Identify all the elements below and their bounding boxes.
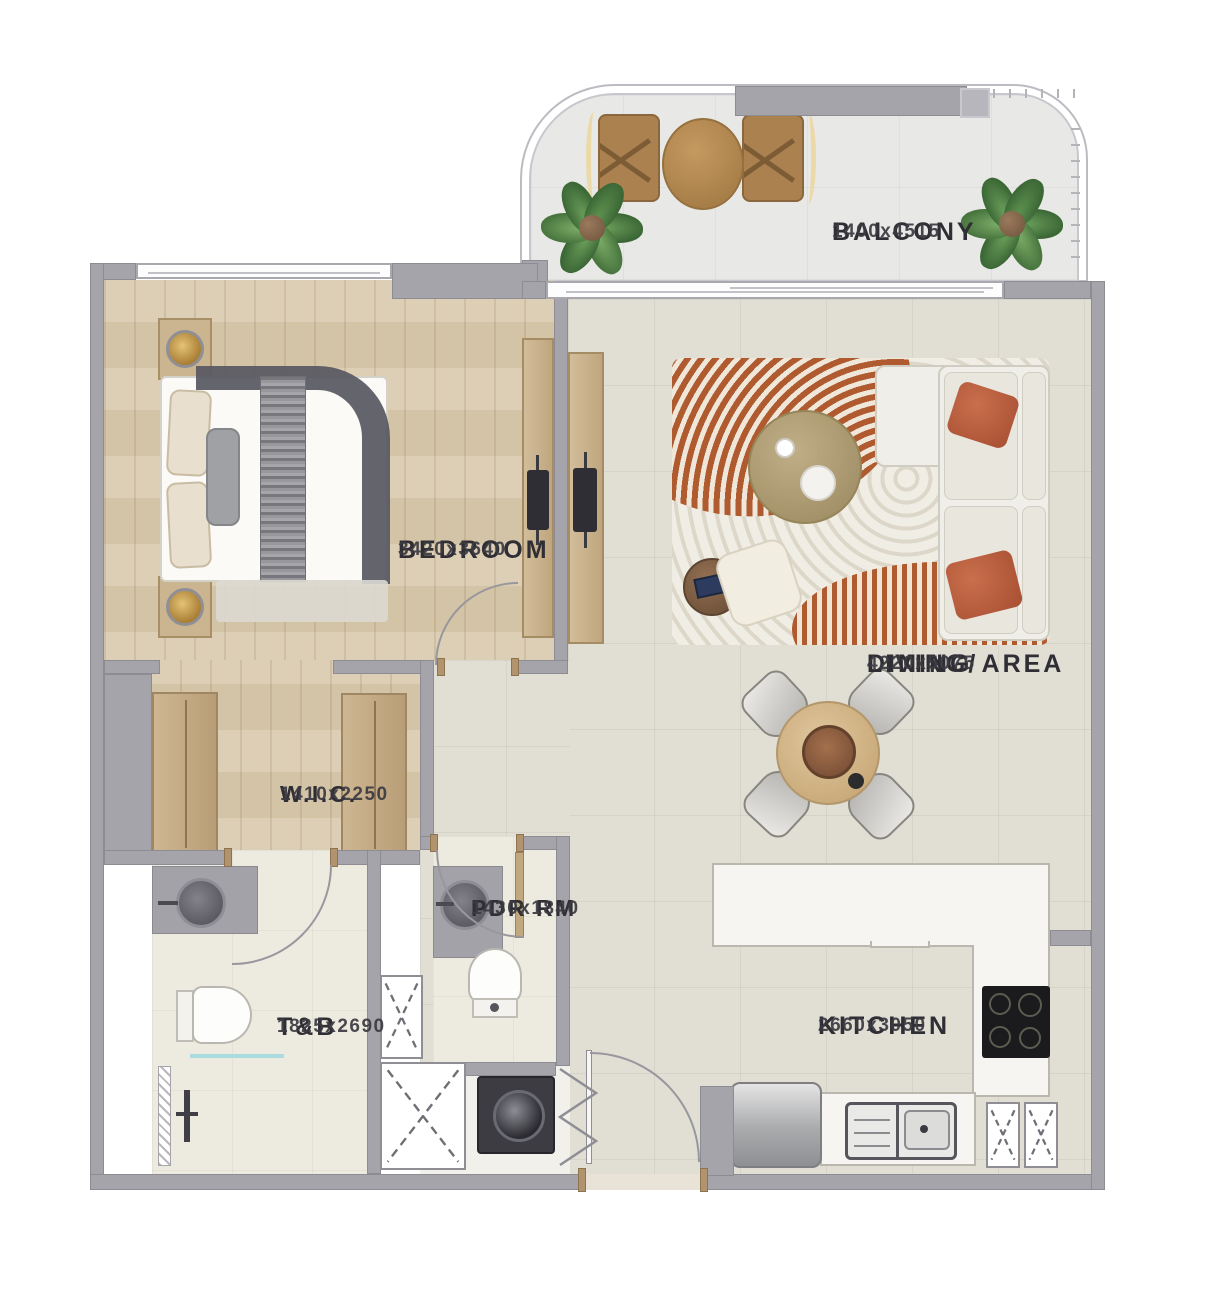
bed-throw-blanket (260, 376, 306, 582)
sofa-back-cushion (1022, 506, 1046, 634)
plant-icon (542, 178, 642, 278)
bed-foot-blanket (216, 580, 388, 622)
tv-icon (527, 470, 549, 530)
cup-icon (775, 438, 795, 458)
tall-cabinet (986, 1102, 1020, 1168)
lamp-icon (166, 588, 204, 626)
lamp-icon (166, 330, 204, 368)
sink-icon (176, 878, 226, 928)
wall-bottom-right (703, 1174, 1105, 1190)
wall-wic-east (420, 660, 434, 850)
shower-drain-strip (158, 1066, 171, 1166)
wardrobe-icon (341, 693, 407, 857)
balcony-chair-right-arm (800, 112, 816, 204)
door-frame (578, 1168, 586, 1192)
wall-kitchen-stub (1050, 930, 1091, 946)
laundry-bifold-door (556, 1066, 602, 1168)
room-dimensions: 1825x2690 (277, 1016, 386, 1038)
flush-button (490, 1003, 499, 1012)
shower-handle-bar (176, 1112, 198, 1116)
dishwasher-handle (870, 941, 930, 948)
faucet-icon (158, 901, 178, 905)
storage-closet (380, 1062, 466, 1170)
dining-table-icon (776, 701, 880, 805)
kitchen-sink-icon (845, 1102, 957, 1160)
washing-machine-icon (477, 1076, 555, 1154)
plate-icon (800, 465, 836, 501)
plant-icon (962, 174, 1062, 274)
wall-left (90, 263, 104, 1190)
coffee-table-icon (748, 410, 862, 524)
balcony-sliding-door (546, 281, 1004, 299)
wall-entry-east (700, 1086, 734, 1176)
floor-plan: BALCONY 1400x4515 BEDROOM 3420x3640 LIVI… (0, 0, 1230, 1294)
storage-closet (380, 975, 423, 1059)
bed-icon (158, 318, 390, 640)
wall-segment (522, 281, 546, 299)
room-dimensions: 3420x3640 (398, 539, 507, 561)
faucet-icon (436, 902, 454, 906)
wall-segment (1004, 281, 1091, 299)
wall-right (1091, 281, 1105, 1190)
balcony-chair-right-icon (742, 114, 804, 202)
wall-wic-west (104, 674, 152, 860)
bedroom-window (136, 263, 392, 279)
wall-segment (333, 660, 434, 674)
room-dimensions: 1410x2250 (280, 784, 389, 806)
wall-bedroom-living (554, 281, 568, 674)
door-frame (700, 1168, 708, 1192)
wall-tb-east (367, 850, 381, 1174)
wall-tb-north (104, 850, 232, 865)
wardrobe-icon (152, 692, 218, 856)
balcony-table-icon (662, 118, 744, 210)
wall-pdr-east (556, 836, 570, 1066)
entry-threshold (585, 1174, 703, 1190)
wall-segment (516, 660, 568, 674)
cooktop-icon (982, 986, 1050, 1058)
balcony-top-wall (735, 86, 967, 116)
tv-icon (573, 468, 597, 532)
room-dimensions: 1400x4515 (832, 221, 941, 243)
room-dimensions: 1430x1840 (471, 898, 580, 920)
door-frame (224, 848, 232, 867)
kitchen-peninsula-counter (712, 863, 1050, 947)
sofa-back-cushion (1022, 372, 1046, 500)
room-dimensions: 2660x3050 (818, 1015, 927, 1037)
toilet-icon (192, 986, 252, 1044)
balcony-railing-ticks-right (1071, 118, 1080, 258)
shower-handle (184, 1090, 190, 1142)
shower-glass-panel (190, 1054, 284, 1058)
refrigerator-icon (730, 1082, 822, 1168)
tall-cabinet (1024, 1102, 1058, 1168)
wall-segment (392, 263, 538, 299)
pillow-icon (206, 428, 240, 526)
balcony-wall-cap (960, 88, 990, 118)
wall-bottom-left (90, 1174, 585, 1190)
room-dimensions: 4220x5075 (867, 653, 976, 675)
wall-segment (104, 660, 160, 674)
toilet-icon (468, 948, 522, 1004)
